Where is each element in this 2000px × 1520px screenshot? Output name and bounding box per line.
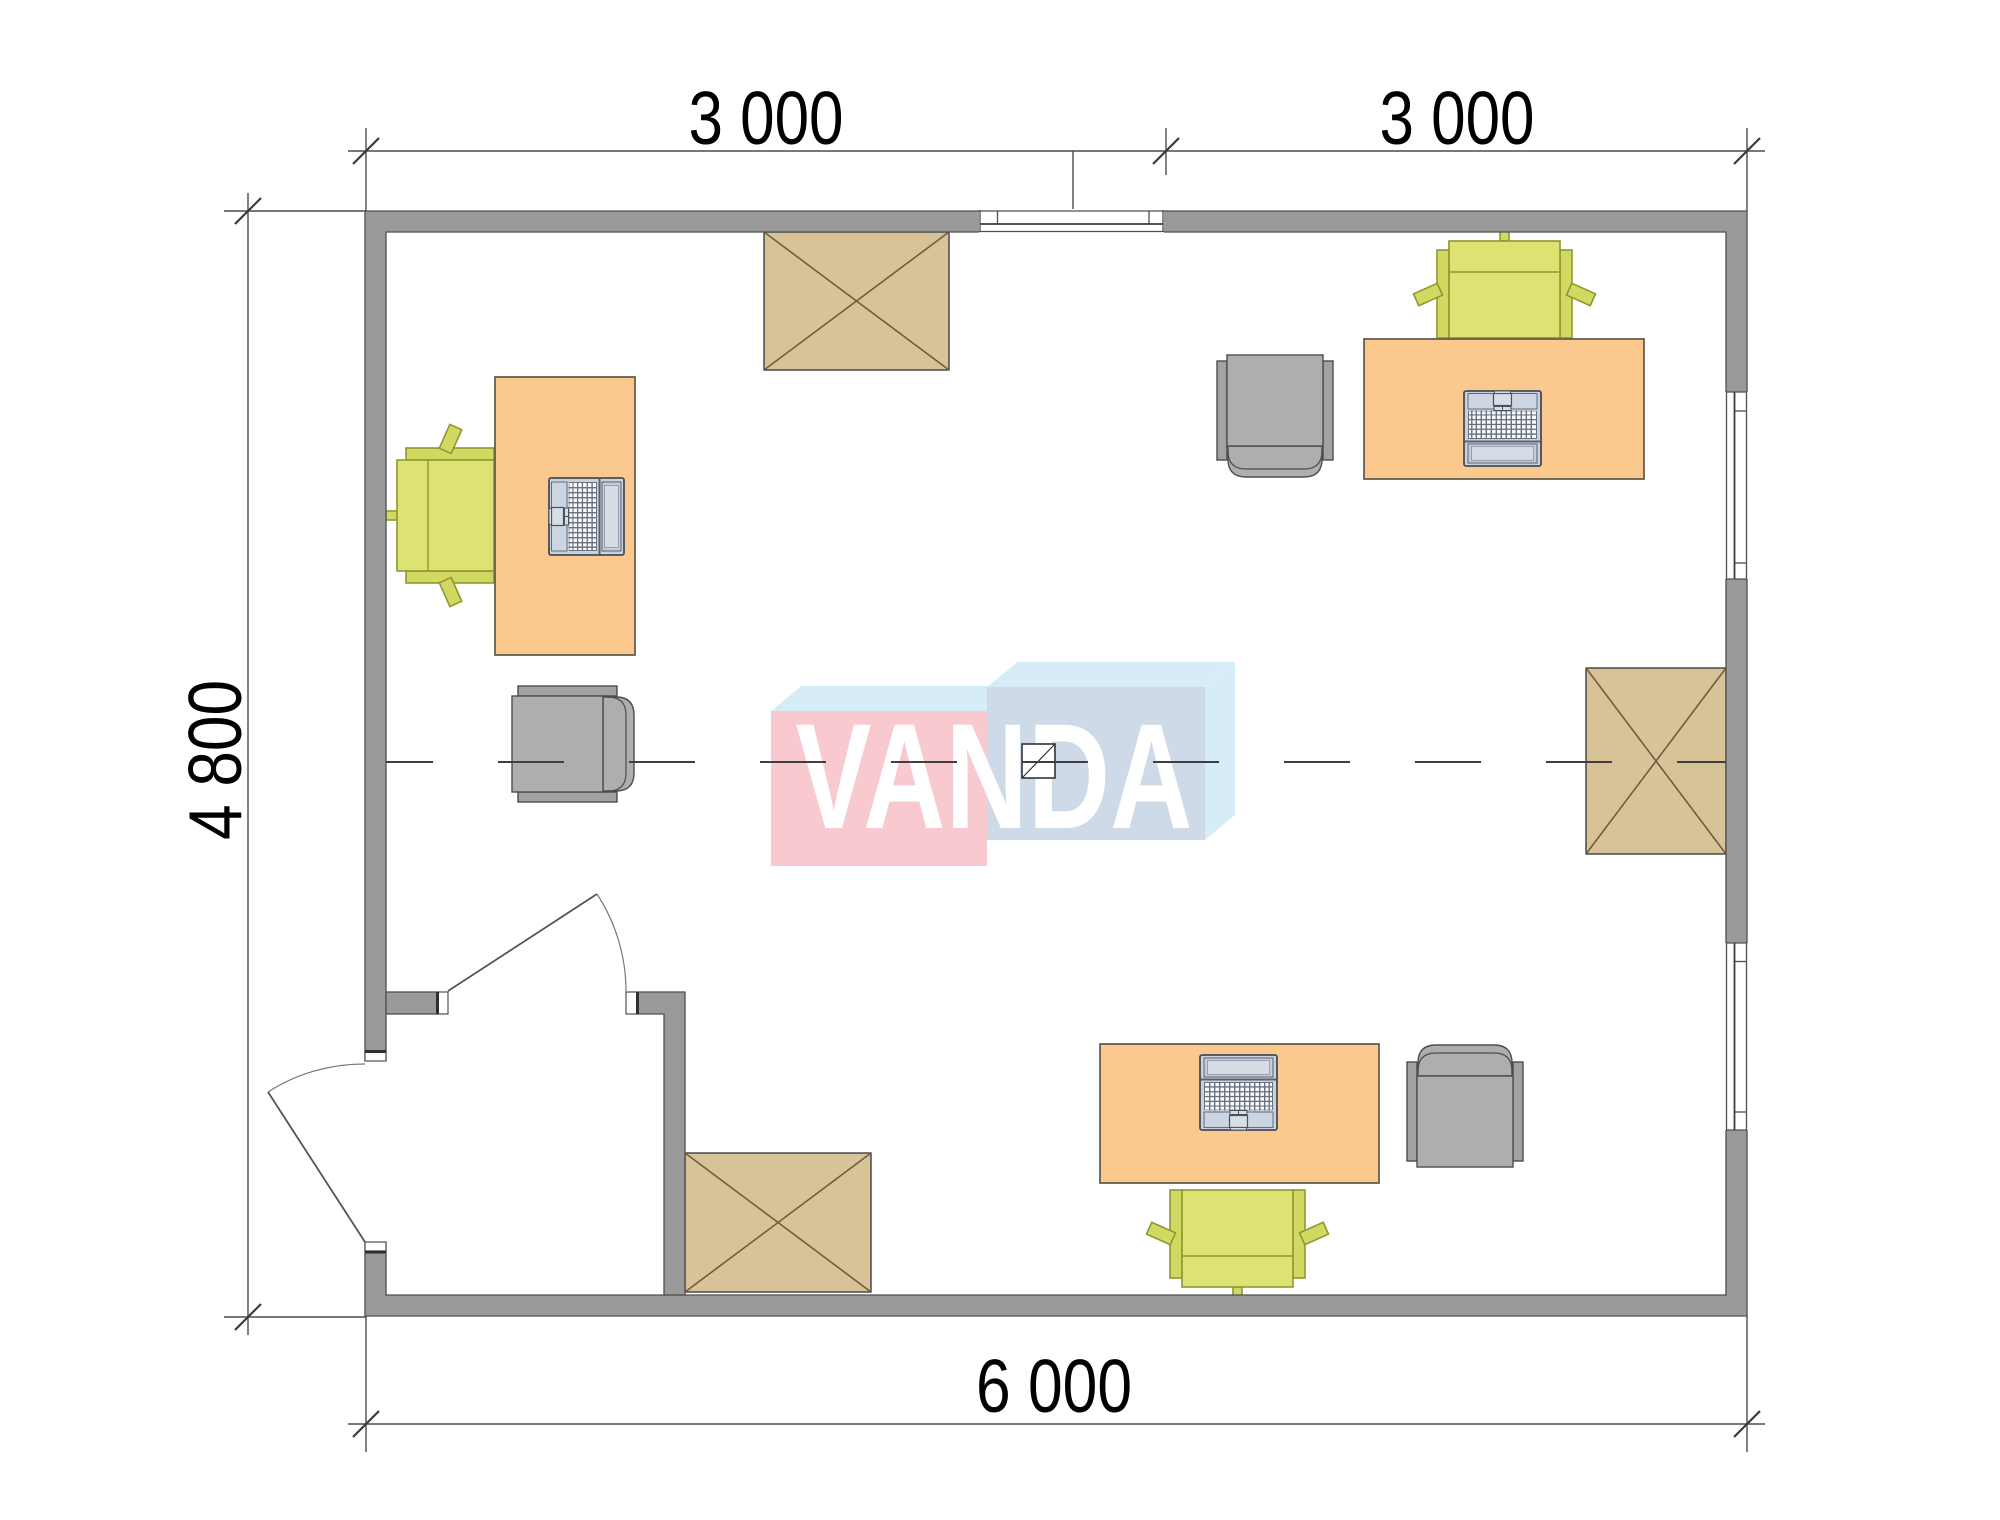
svg-text:VANDA: VANDA: [796, 692, 1193, 860]
svg-text:3 000: 3 000: [689, 76, 844, 160]
svg-text:4 800: 4 800: [173, 680, 257, 840]
svg-text:3 000: 3 000: [1380, 76, 1535, 160]
svg-text:6 000: 6 000: [976, 1344, 1132, 1428]
